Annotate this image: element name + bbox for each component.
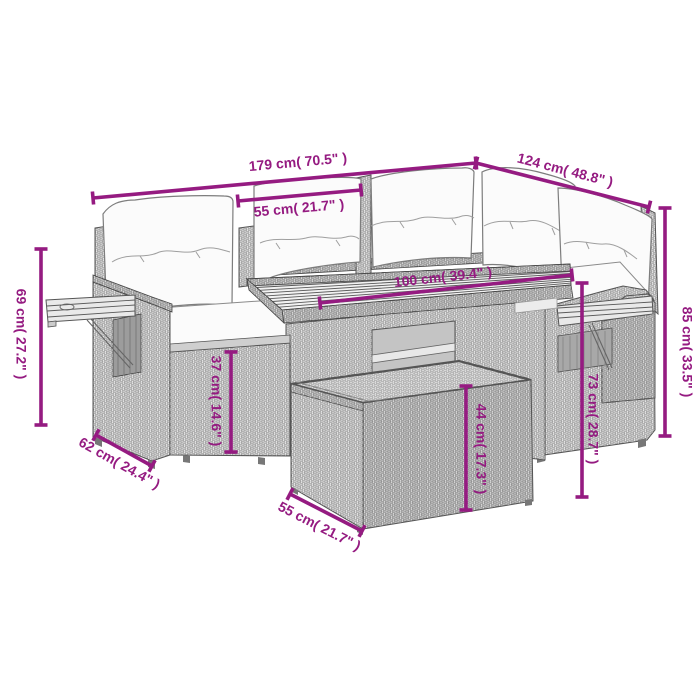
svg-text:37 cm( 14.6" ): 37 cm( 14.6" ) <box>208 356 224 447</box>
svg-text:85 cm( 33.5" ): 85 cm( 33.5" ) <box>679 307 695 398</box>
svg-text:69 cm( 27.2" ): 69 cm( 27.2" ) <box>13 289 29 380</box>
svg-text:179 cm( 70.5" ): 179 cm( 70.5" ) <box>248 149 348 174</box>
svg-text:73 cm( 28.7" ): 73 cm( 28.7" ) <box>585 374 601 465</box>
svg-text:44 cm( 17.3" ): 44 cm( 17.3" ) <box>473 404 489 495</box>
